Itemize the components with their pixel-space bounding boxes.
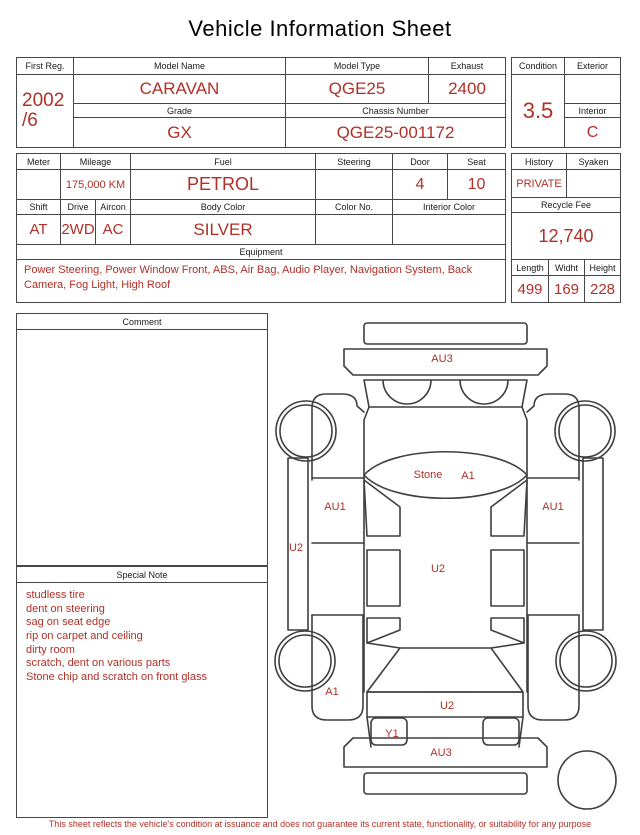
exhaust-value: 2400 xyxy=(429,75,505,103)
diagram-label-left-rocker: U2 xyxy=(289,542,303,554)
right-rocker-shape xyxy=(583,458,603,630)
diagram-label-roof: U2 xyxy=(431,563,445,575)
door-label: Door xyxy=(393,154,447,169)
syaken-value xyxy=(567,170,620,197)
history-label: History xyxy=(512,154,566,169)
aircon-value: AC xyxy=(96,215,130,244)
drive-label: Drive xyxy=(61,200,95,214)
diagram-label-front-panel: AU3 xyxy=(431,353,452,365)
condition-value: 3.5 xyxy=(512,75,564,147)
fuel-label: Fuel xyxy=(131,154,315,169)
rear-bumper-shape xyxy=(364,773,527,794)
right-slider-window xyxy=(491,550,524,606)
diagram-label-rear-panel: AU3 xyxy=(430,747,451,759)
special-note-label: Special Note xyxy=(17,567,267,583)
recycle-fee-value: 12,740 xyxy=(512,213,620,259)
model-type-label: Model Type xyxy=(286,58,428,74)
history-table: History Syaken PRIVATE Recycle Fee 12,74… xyxy=(511,153,621,303)
chassis-number-value: QGE25-001172 xyxy=(286,118,505,147)
grade-label: Grade xyxy=(74,104,285,117)
diagram-label-right-side: AU1 xyxy=(542,501,563,513)
color-no-value xyxy=(316,215,392,244)
chassis-number-label: Chassis Number xyxy=(286,104,505,117)
vehicle-information-sheet: Vehicle Information Sheet First Reg. Mod… xyxy=(0,0,640,835)
first-reg-label: First Reg. xyxy=(17,58,73,74)
diagram-label-rear-left-fender: A1 xyxy=(325,686,338,698)
meter-label: Meter xyxy=(17,154,60,169)
interior-color-value xyxy=(393,215,505,244)
diagram-label-front-glass-grade: A1 xyxy=(461,470,474,482)
mileage-label: Mileage xyxy=(61,154,130,169)
vehicle-id-table: First Reg. Model Name Model Type Exhaust… xyxy=(16,57,506,148)
left-slider-window xyxy=(367,550,400,606)
right-pillar-shape xyxy=(527,394,579,480)
condition-label: Condition xyxy=(512,58,564,74)
height-label: Height xyxy=(585,260,620,275)
diagram-label-rear-corner: Y1 xyxy=(385,728,398,740)
meter-value xyxy=(17,170,60,199)
special-note-line: Stone chip and scratch on front glass xyxy=(26,671,258,685)
interior-label: Interior xyxy=(565,104,620,117)
diagram-label-front-glass-note: Stone xyxy=(414,469,443,481)
comment-box: Comment xyxy=(16,313,268,566)
front-glass-shape xyxy=(364,452,527,499)
comment-text xyxy=(17,330,267,342)
door-value: 4 xyxy=(393,170,447,199)
special-note-line: scratch, dent on various parts xyxy=(26,657,258,671)
diagram-label-left-side: AU1 xyxy=(324,501,345,513)
left-rear-window xyxy=(367,618,400,643)
mileage-value: 175,000 KM xyxy=(61,170,130,199)
color-no-label: Color No. xyxy=(316,200,392,214)
special-note-list: studless tire dent on steering sag on se… xyxy=(17,583,267,690)
equipment-label: Equipment xyxy=(17,245,505,259)
model-name-value: CARAVAN xyxy=(74,75,285,103)
syaken-label: Syaken xyxy=(567,154,620,169)
condition-table: Condition Exterior 3.5 Interior C xyxy=(511,57,621,148)
special-note-line: studless tire xyxy=(26,589,258,603)
disclaimer-text: This sheet reflects the vehicle's condit… xyxy=(0,819,640,829)
right-rear-fender xyxy=(528,615,579,720)
special-note-box: Special Note studless tire dent on steer… xyxy=(16,566,268,818)
diagram-label-tailgate: U2 xyxy=(440,700,454,712)
wheel-front-right-inner xyxy=(559,405,611,457)
seat-value: 10 xyxy=(448,170,505,199)
model-type-value: QGE25 xyxy=(286,75,428,103)
steering-label: Steering xyxy=(316,154,392,169)
widht-value: 169 xyxy=(549,276,584,302)
fuel-value: PETROL xyxy=(131,170,315,199)
first-reg-month: /6 xyxy=(22,111,38,131)
grade-value: GX xyxy=(74,118,285,147)
wheel-rear-left xyxy=(275,631,335,691)
wheel-front-left-inner xyxy=(280,405,332,457)
rear-glass-shape xyxy=(367,648,523,692)
left-rear-fender xyxy=(312,615,363,720)
special-note-line: sag on seat edge xyxy=(26,616,258,630)
shift-value: AT xyxy=(17,215,60,244)
wheel-front-left xyxy=(276,401,336,461)
vehicle-diagram: AU3 Stone A1 AU1 AU1 U2 U2 A1 U2 Y1 AU3 xyxy=(270,310,640,815)
right-rear-window xyxy=(491,618,524,643)
wheel-front-right xyxy=(555,401,615,461)
exterior-label: Exterior xyxy=(565,58,620,74)
van-top-view-diagram: AU3 Stone A1 AU1 AU1 U2 U2 A1 U2 Y1 AU3 xyxy=(270,310,640,815)
length-label: Length xyxy=(512,260,548,275)
body-color-value: SILVER xyxy=(131,215,315,244)
widht-label: Widht xyxy=(549,260,584,275)
left-pillar-shape xyxy=(312,394,364,480)
equipment-value: Power Steering, Power Window Front, ABS,… xyxy=(17,260,505,302)
history-value: PRIVATE xyxy=(512,170,566,197)
right-rear-strut xyxy=(491,643,524,648)
interior-color-label: Interior Color xyxy=(393,200,505,214)
body-color-label: Body Color xyxy=(131,200,315,214)
wheel-rear-right-inner xyxy=(560,635,612,687)
aircon-label: Aircon xyxy=(96,200,130,214)
exhaust-label: Exhaust xyxy=(429,58,505,74)
seat-label: Seat xyxy=(448,154,505,169)
wiper-arc-left xyxy=(383,380,431,404)
wiper-arc-right xyxy=(460,380,508,404)
steering-value xyxy=(316,170,392,199)
spec-table: Meter Mileage Fuel Steering Door Seat 17… xyxy=(16,153,506,303)
special-note-line: dirty room xyxy=(26,644,258,658)
comment-label: Comment xyxy=(17,314,267,330)
windshield-shape xyxy=(364,380,527,407)
first-reg-value: 2002 /6 xyxy=(17,75,73,147)
left-rear-strut xyxy=(367,643,400,648)
shift-label: Shift xyxy=(17,200,60,214)
drive-value: 2WD xyxy=(61,215,95,244)
right-front-window xyxy=(491,480,527,536)
recycle-fee-label: Recycle Fee xyxy=(512,198,620,212)
rear-corner-right-shape xyxy=(483,718,519,745)
spare-tire xyxy=(558,751,616,809)
left-front-window xyxy=(364,480,400,536)
height-value: 228 xyxy=(585,276,620,302)
special-note-line: dent on steering xyxy=(26,603,258,617)
special-note-line: rip on carpet and ceiling xyxy=(26,630,258,644)
wheel-rear-right xyxy=(556,631,616,691)
model-name-label: Model Name xyxy=(74,58,285,74)
interior-value: C xyxy=(565,118,620,147)
wheel-rear-left-inner xyxy=(279,635,331,687)
exterior-value xyxy=(565,75,620,103)
front-bumper-shape xyxy=(364,323,527,344)
page-title: Vehicle Information Sheet xyxy=(0,16,640,42)
first-reg-year: 2002 xyxy=(22,91,64,111)
length-value: 499 xyxy=(512,276,548,302)
